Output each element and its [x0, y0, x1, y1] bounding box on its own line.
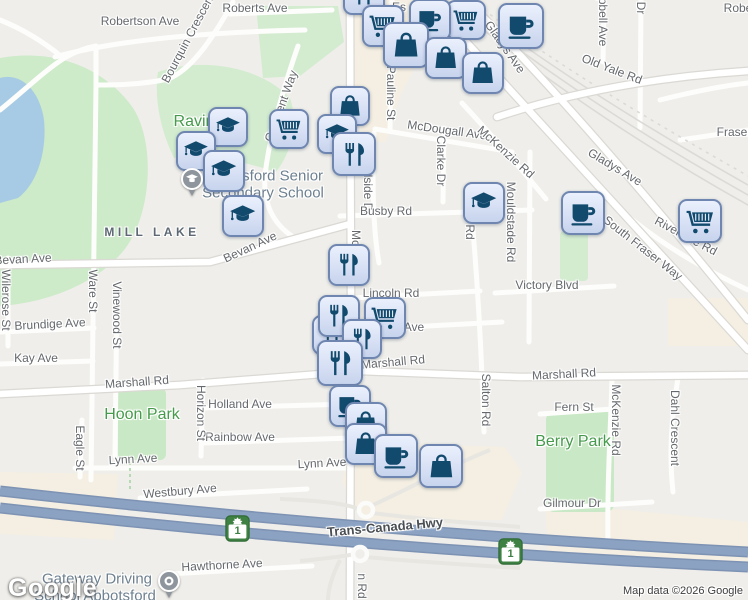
shield-number: 1	[225, 525, 250, 537]
coffee-cup-marker[interactable]	[561, 191, 605, 235]
school-marker[interactable]	[222, 195, 264, 237]
shopping-cart-marker[interactable]	[269, 109, 309, 149]
highway-1-shield[interactable]: 1	[225, 515, 250, 542]
shopping-bag-marker[interactable]	[383, 22, 429, 68]
school-marker[interactable]	[463, 182, 505, 224]
map-attribution: Map data ©2026 Google	[623, 585, 743, 597]
shopping-bag-marker[interactable]	[462, 52, 504, 94]
coffee-cup-marker[interactable]	[498, 3, 544, 49]
coffee-cup-marker[interactable]	[374, 434, 418, 478]
google-logo: Google	[8, 574, 97, 600]
shield-number: 1	[498, 548, 523, 560]
restaurant-marker[interactable]	[328, 244, 370, 286]
shopping-bag-marker[interactable]	[425, 37, 467, 79]
restaurant-marker[interactable]	[317, 340, 363, 386]
restaurant-marker[interactable]	[332, 132, 376, 176]
shopping-cart-marker[interactable]	[678, 199, 722, 243]
school-poi-pin[interactable]	[180, 168, 204, 197]
poi-pin[interactable]	[157, 570, 181, 599]
map-canvas[interactable]: Robertson AveRoberts AveRobeEsBourquin C…	[0, 0, 748, 600]
shopping-cart-marker[interactable]	[446, 0, 486, 40]
school-marker[interactable]	[203, 150, 245, 192]
shopping-bag-marker[interactable]	[419, 444, 463, 488]
highway-1-shield[interactable]: 1	[498, 538, 523, 565]
